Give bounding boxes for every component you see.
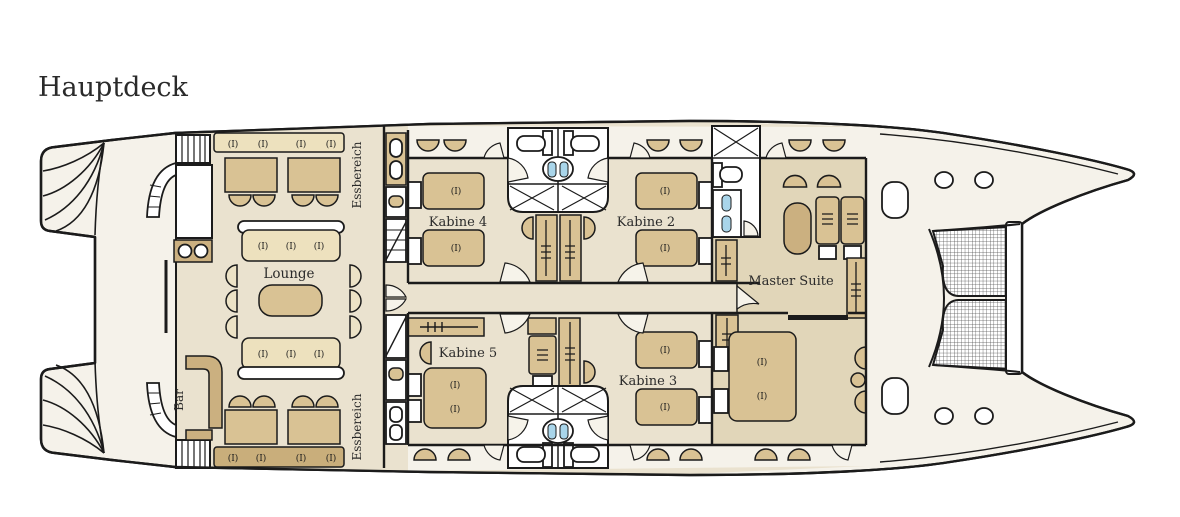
nightstand: [408, 374, 421, 396]
stairs-bottom: [176, 440, 210, 468]
cushion-mark: (I): [228, 139, 239, 150]
room-label-cabin-5: Kabine 5: [439, 346, 497, 361]
room-label-cabin-4: Kabine 4: [429, 215, 487, 230]
stairs-to-hull-bottom: [386, 315, 406, 358]
room-label-master-suite: Master Suite: [748, 274, 834, 289]
dining-table: [288, 410, 340, 444]
pillow-mark: (I): [451, 243, 462, 254]
nightstand: [699, 182, 712, 208]
cabinet: [528, 318, 556, 334]
cabinet-door: [390, 407, 402, 422]
galley-sink-icon: [195, 245, 208, 258]
room-label-dining-bottom: Essbereich: [350, 393, 364, 460]
room-label-cabin-2: Kabine 2: [617, 215, 675, 230]
deck-plan-page: (I) (I) (I) (I) (I) (I) (I) (I) (I) (I) …: [0, 0, 1180, 517]
galley-counter: [174, 240, 212, 262]
cushion-mark: (I): [326, 139, 337, 150]
galley-sink-icon: [179, 245, 192, 258]
nightstand: [699, 397, 712, 423]
coffee-table: [259, 285, 322, 316]
porthole-hatch: [935, 172, 953, 188]
basin: [389, 368, 403, 380]
cushion-mark: (I): [286, 241, 297, 252]
wall-stool: [851, 373, 865, 387]
dining-table: [225, 158, 277, 192]
stairs-top: [176, 135, 210, 163]
double-bed: [424, 368, 486, 428]
dining-table: [288, 158, 340, 192]
room-label-lounge: Lounge: [263, 266, 314, 282]
nightstand: [408, 182, 421, 208]
deck-title: Hauptdeck: [38, 72, 189, 103]
nightstand: [699, 341, 712, 367]
pillow-mark: (I): [757, 357, 768, 368]
deck-hatch-bottom: [882, 378, 908, 414]
nightstand: [408, 400, 421, 422]
galley-block: [176, 165, 212, 238]
dresser: [529, 336, 556, 388]
nightstand: [714, 347, 728, 371]
cabinet-door: [390, 161, 402, 179]
cushion-mark: (I): [296, 139, 307, 150]
cushion-mark: (I): [326, 453, 337, 464]
room-label-cabin-3: Kabine 3: [619, 374, 677, 389]
toilet-icon: [713, 190, 741, 237]
dresser: [841, 197, 864, 259]
cabinet-door: [390, 425, 402, 440]
nightstand: [714, 389, 728, 413]
bowsprit-spine: [1006, 222, 1022, 374]
pillow-mark: (I): [660, 186, 671, 197]
room-label-bar: Bar: [172, 389, 186, 411]
pillow-mark: (I): [451, 186, 462, 197]
double-bed: [729, 332, 796, 421]
toilet-icon: [543, 157, 573, 181]
nightstand: [408, 238, 421, 264]
pillow-mark: (I): [660, 243, 671, 254]
cushion-mark: (I): [258, 139, 269, 150]
deck-plan-drawing: (I) (I) (I) (I) (I) (I) (I) (I) (I) (I) …: [0, 0, 1180, 517]
pillow-mark: (I): [757, 391, 768, 402]
nightstand: [699, 238, 712, 264]
porthole-hatch: [975, 408, 993, 424]
porthole-hatch: [935, 408, 953, 424]
stairs-to-hull-top: [386, 219, 406, 262]
basin: [389, 196, 403, 207]
sofa-back: [238, 367, 344, 379]
pillow-mark: (I): [450, 404, 461, 415]
cabinet-door: [390, 139, 402, 157]
porthole-hatch: [975, 172, 993, 188]
cushion-mark: (I): [296, 453, 307, 464]
pillow-mark: (I): [660, 345, 671, 356]
side-table: [784, 203, 811, 254]
cushion-mark: (I): [258, 241, 269, 252]
cushion-mark: (I): [314, 241, 325, 252]
room-label-dining-top: Essbereich: [350, 141, 364, 208]
cushion-mark: (I): [256, 453, 267, 464]
dining-table: [225, 410, 277, 444]
deck-hatch-top: [882, 182, 908, 218]
door-threshold: [788, 315, 848, 320]
dresser: [816, 197, 839, 259]
toilet-icon: [543, 419, 573, 443]
cushion-mark: (I): [258, 349, 269, 360]
bathroom-master: [712, 126, 760, 237]
cushion-mark: (I): [228, 453, 239, 464]
cushion-mark: (I): [286, 349, 297, 360]
cushion-mark: (I): [314, 349, 325, 360]
pillow-mark: (I): [660, 402, 671, 413]
pillow-mark: (I): [450, 380, 461, 391]
